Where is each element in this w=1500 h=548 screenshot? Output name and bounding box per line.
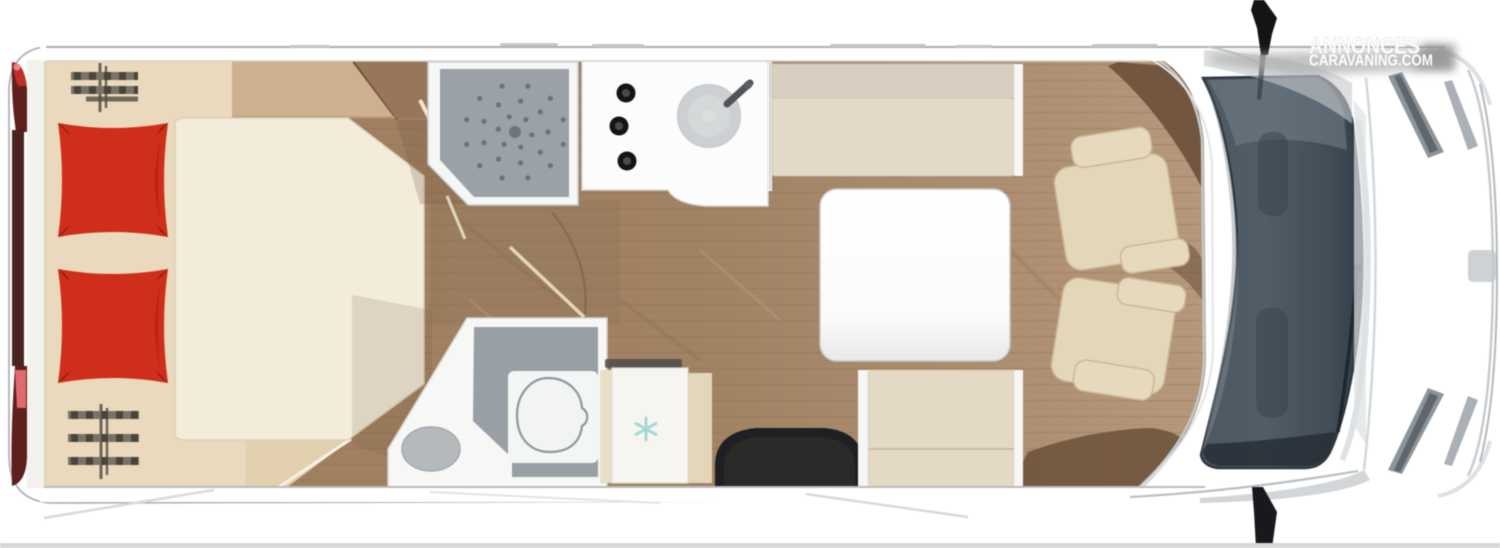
svg-text:CARAVANING.COM: CARAVANING.COM <box>1309 53 1433 70</box>
